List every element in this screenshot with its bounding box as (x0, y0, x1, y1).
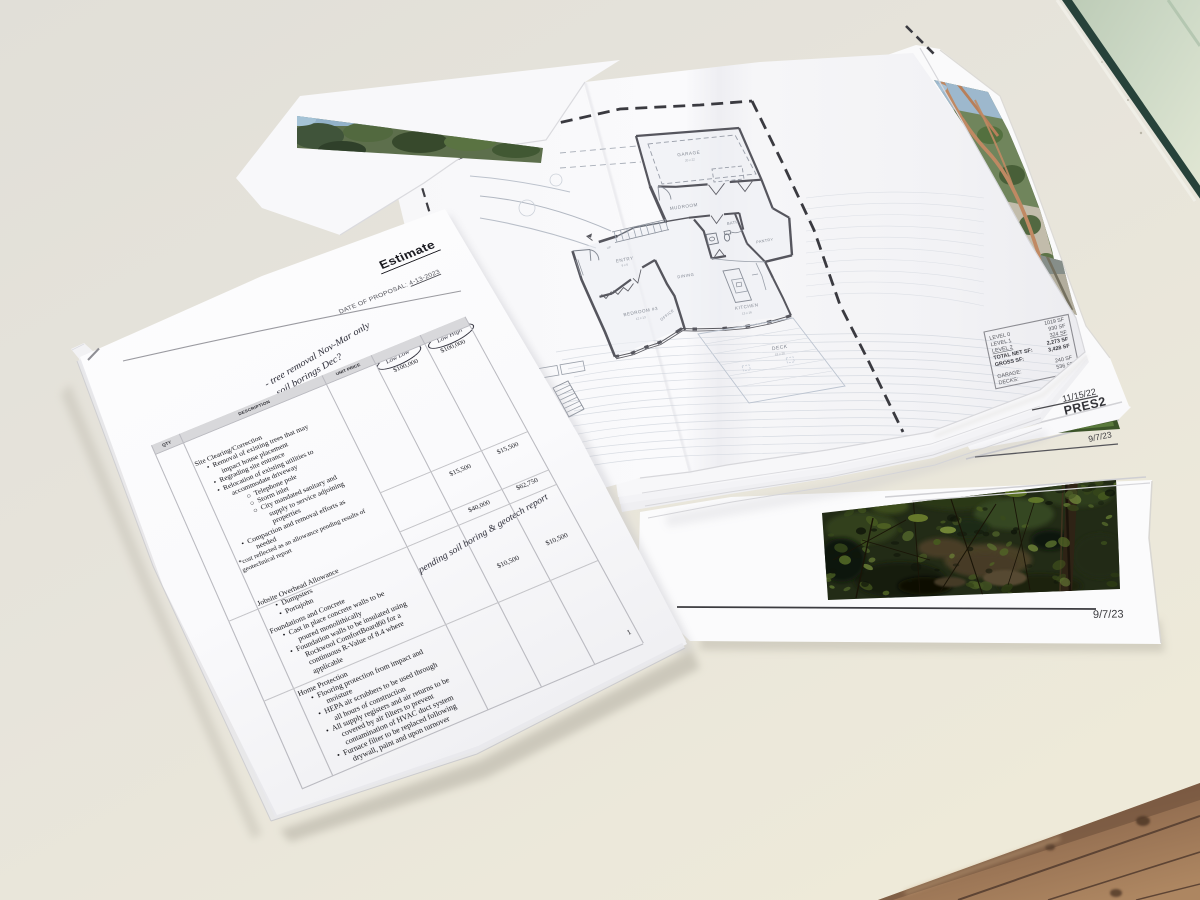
svg-text:9/7/23: 9/7/23 (1093, 608, 1124, 621)
svg-text:UP: UP (606, 245, 611, 250)
